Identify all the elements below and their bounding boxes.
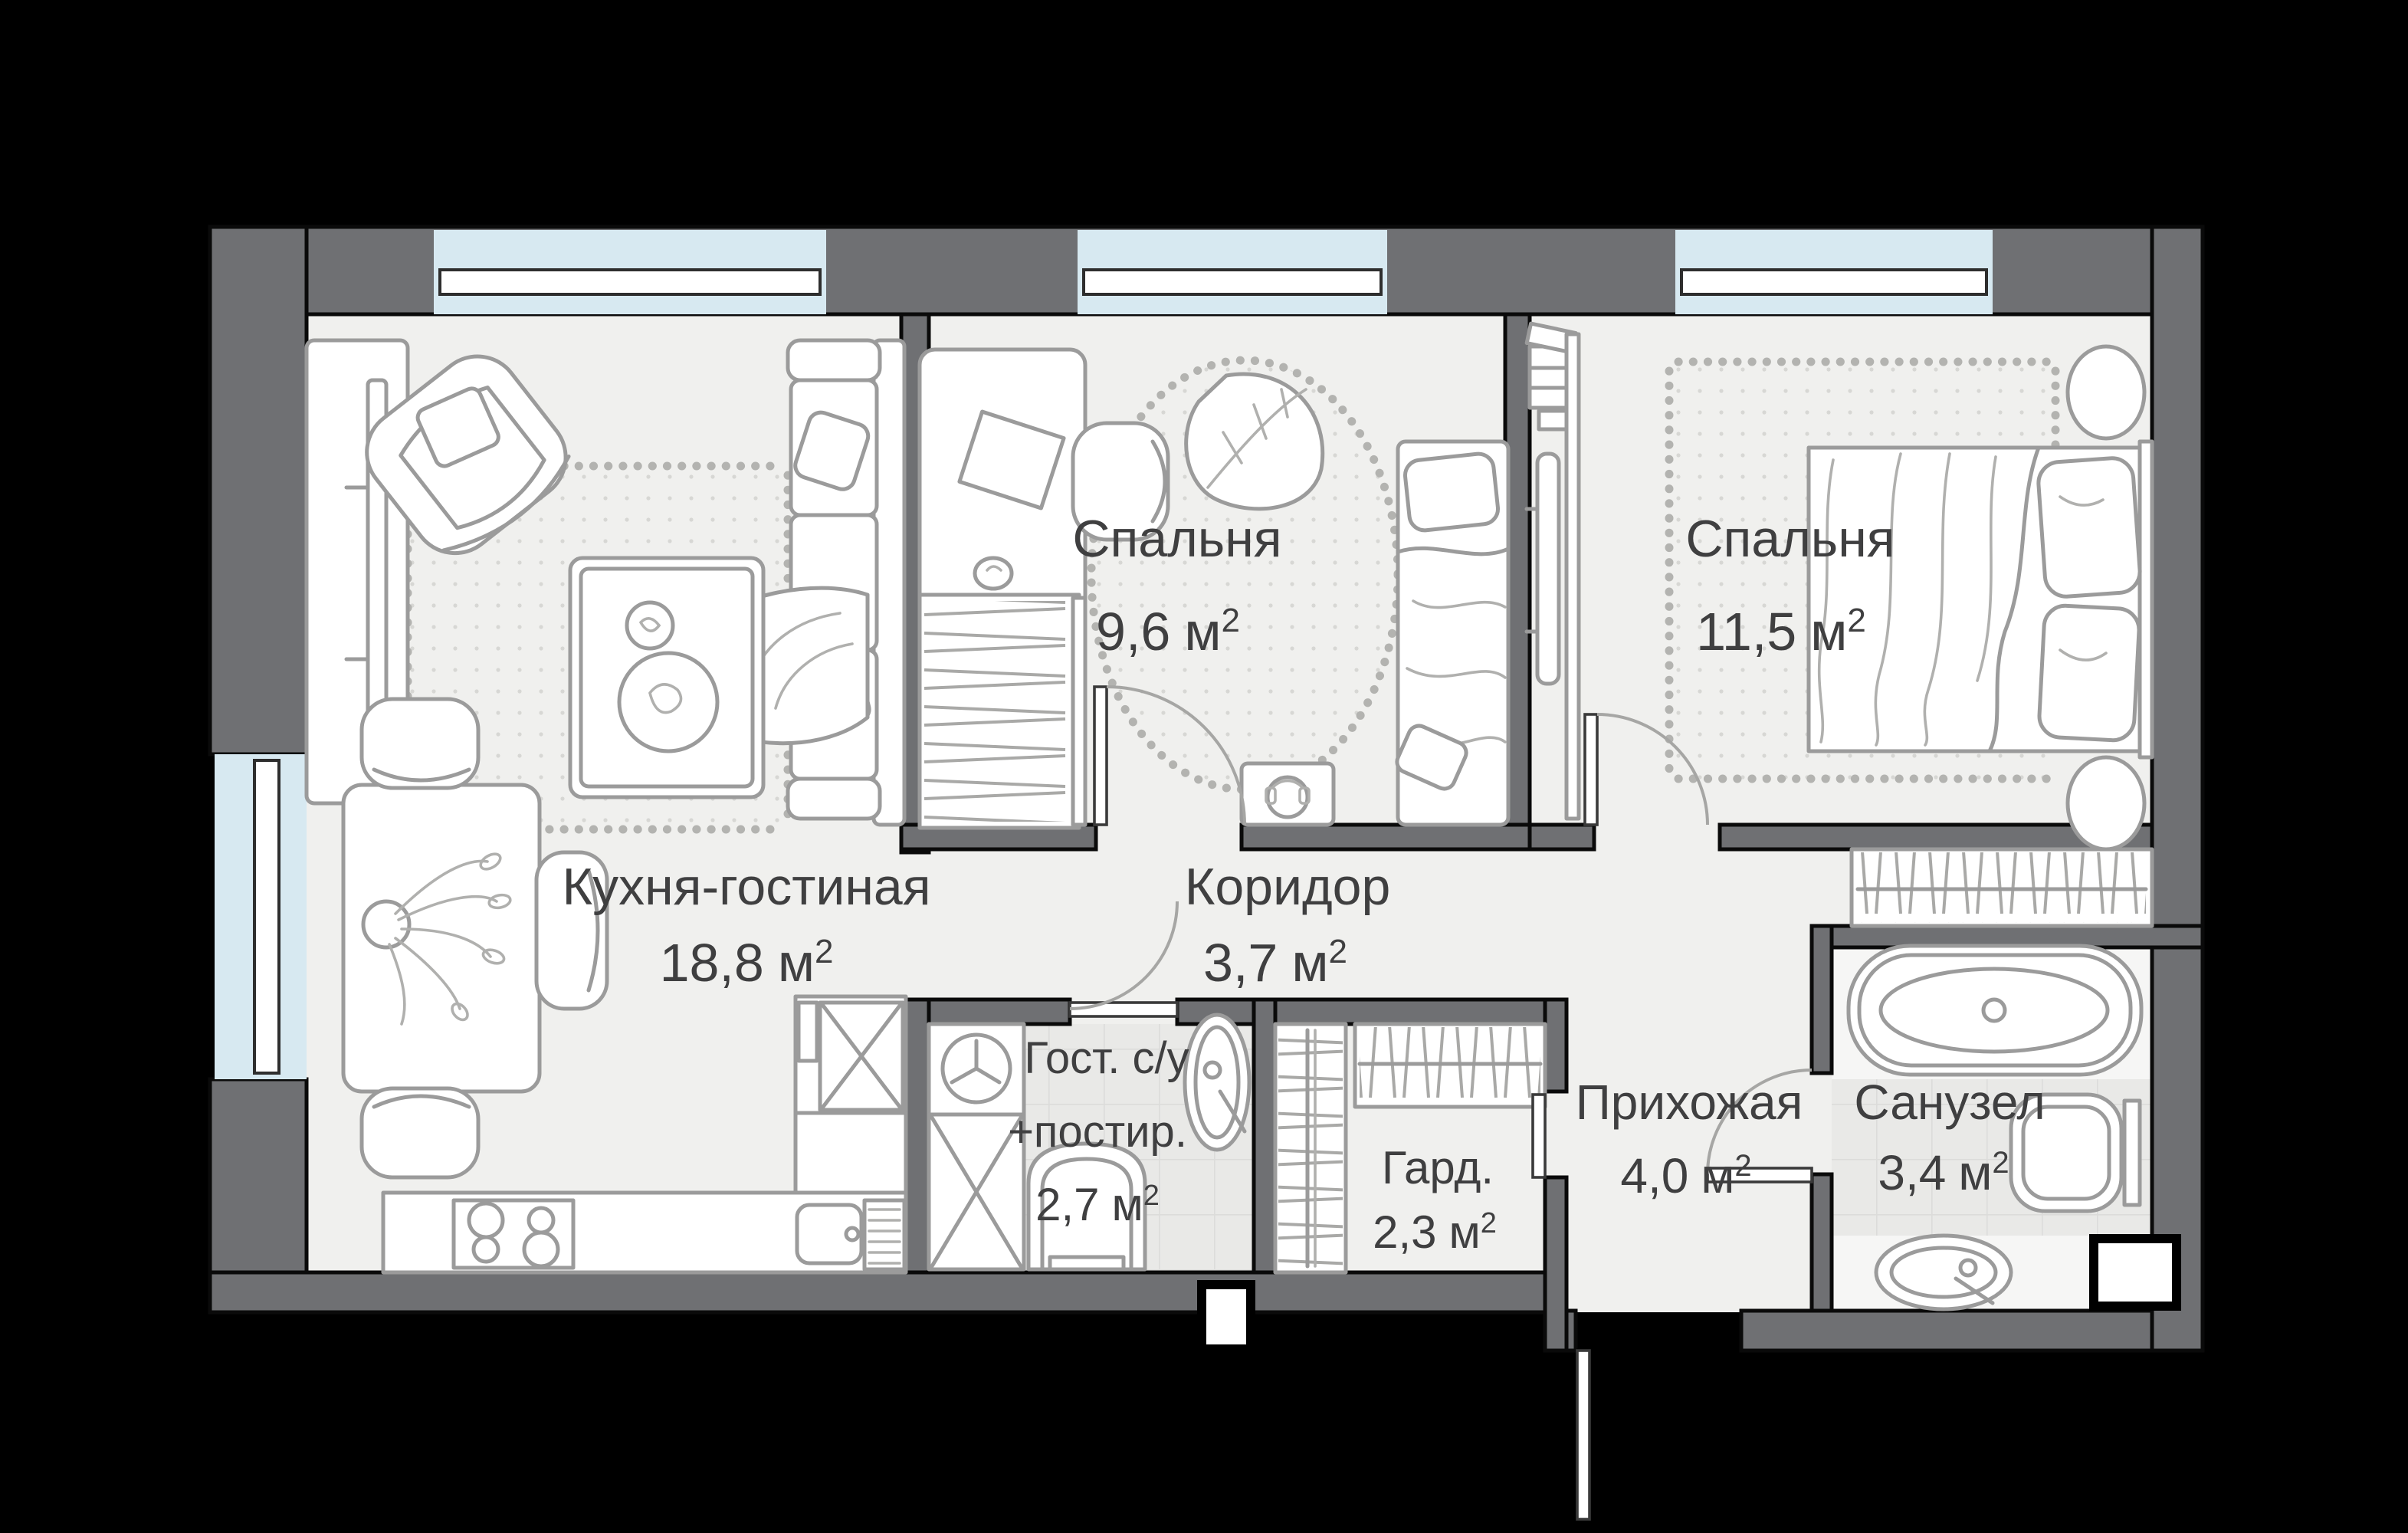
- wall-kitchen-guestwc: [906, 1000, 929, 1272]
- entry-door: [1577, 1351, 1589, 1519]
- bedroom1-nightstand: [1242, 763, 1334, 825]
- sofa-armrest-top: [788, 340, 880, 380]
- wardrobe-room-rail: [1275, 1024, 1346, 1272]
- wall-right: [2152, 227, 2203, 1351]
- wall-bottom-right: [1741, 1311, 2203, 1351]
- bedroom2-bed: [1809, 442, 2152, 757]
- room-name: Гард.: [1382, 1142, 1494, 1193]
- window-living: [434, 230, 826, 314]
- wall-bedroom1-bottom-right: [1242, 825, 1530, 849]
- guest-sink: [1185, 1015, 1249, 1150]
- room-name: Спальня: [1685, 510, 1895, 568]
- bedroom1-bed: [1393, 442, 1508, 825]
- wardrobe-side-panel: [1073, 598, 1085, 825]
- room-area: 4,0м2: [1620, 1148, 1751, 1203]
- bedroom2-headboard: [2140, 442, 2152, 757]
- bedroom2-ledge: [1567, 334, 1579, 819]
- kitchen-tall-units: [796, 996, 906, 1193]
- coffee-table-plate: [627, 602, 673, 648]
- room-name: Прихожая: [1576, 1075, 1803, 1130]
- window-bedroom2: [1675, 230, 1993, 314]
- coffee-table-tray: [619, 653, 717, 751]
- wall-bedroom2-bottom-left: [1530, 825, 1594, 849]
- room-area: 3,4м2: [1878, 1145, 2009, 1200]
- desk-mouse: [975, 558, 1012, 589]
- wall-guestwc-wardrobe: [1254, 1000, 1275, 1272]
- washing-machine: [929, 1024, 1024, 1114]
- wall-corridor-bottom-left: [929, 1000, 1070, 1024]
- room-area: 9,6м2: [1096, 602, 1240, 661]
- bedroom2-nightstand-top: [2068, 346, 2144, 438]
- room-name: Спальня: [1072, 510, 1281, 568]
- room-name: Гост. с/у: [1024, 1033, 1189, 1083]
- room-area: 11,5м2: [1696, 602, 1866, 661]
- coffee-table: [570, 558, 763, 797]
- dining-chair-bottom: [362, 1088, 478, 1177]
- bedroom2-pillow-2: [2039, 605, 2141, 741]
- wall-hallway-bathroom-upper: [1812, 926, 1832, 1073]
- bathtub: [1849, 946, 2141, 1075]
- toilet-cistern: [2124, 1101, 2140, 1205]
- hallway-closet: [1852, 849, 2152, 926]
- room-name: Санузел: [1854, 1075, 2045, 1130]
- room-area: 3,7м2: [1203, 933, 1347, 993]
- wall-corridor-bottom-right: [1177, 1000, 1567, 1024]
- wardrobe-room-shelf: [1355, 1024, 1545, 1107]
- shaft-niche-right: [2094, 1239, 2177, 1306]
- window-bedroom1: [1078, 230, 1387, 314]
- floor-plan-svg: Кухня-гостиная 18,8м2 Спальня 9,6м2 Спал…: [0, 0, 2408, 1533]
- bedroom1-pillow: [1404, 452, 1500, 532]
- wall-wardrobe-hallway-upper: [1545, 1000, 1567, 1091]
- floor-plan-stage: Кухня-гостиная 18,8м2 Спальня 9,6м2 Спал…: [0, 0, 2408, 1533]
- bedroom1-wardrobe: [920, 595, 1085, 828]
- dish-rack: [864, 1200, 904, 1269]
- bedroom2-nightstand-bottom: [2068, 757, 2144, 849]
- bathroom-sink: [1876, 1236, 2011, 1309]
- room-area: 2,7м2: [1035, 1179, 1160, 1230]
- wall-bottom-left: [210, 1272, 1567, 1312]
- kitchen-sink: [797, 1205, 861, 1263]
- room-area: 18,8м2: [660, 933, 834, 993]
- room-name: Кухня-гостиная: [562, 858, 930, 916]
- dining-chair-top: [362, 699, 478, 788]
- wardrobe-room-door: [1533, 1095, 1545, 1177]
- kitchen-counter: [383, 1193, 906, 1272]
- room-name: Коридор: [1185, 858, 1391, 916]
- cooktop: [454, 1200, 573, 1268]
- sofa-armrest-bottom: [788, 779, 880, 819]
- shaft-niche-guest: [1202, 1285, 1251, 1349]
- room-name-2: +постир.: [1008, 1107, 1187, 1157]
- room-area: 2,3м2: [1373, 1206, 1497, 1258]
- wall-hallway-bathroom-lower: [1812, 1174, 1832, 1311]
- wall-left-upper: [210, 227, 307, 754]
- bedroom2-pillow-1: [2037, 457, 2141, 598]
- window-kitchen-side: [215, 754, 307, 1079]
- wall-wardrobe-hallway-lower: [1545, 1177, 1567, 1351]
